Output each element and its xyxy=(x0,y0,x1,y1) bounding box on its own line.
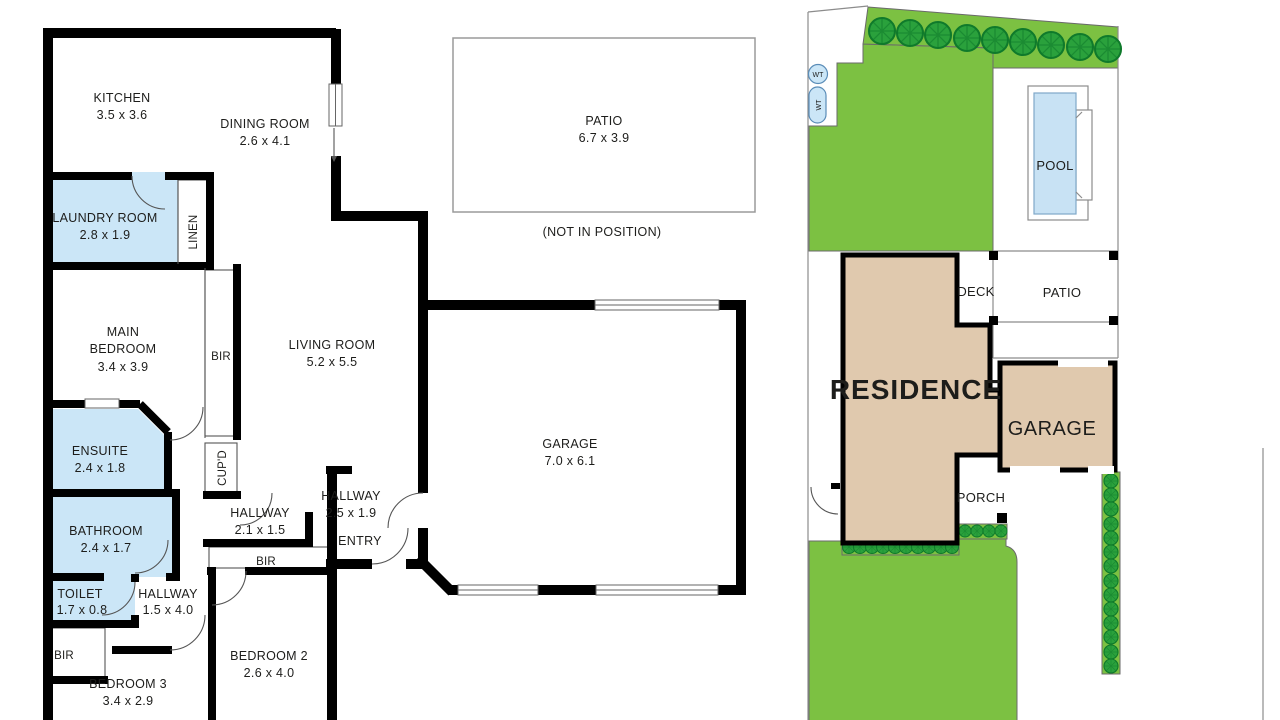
label-bathroom-dims: 2.4 x 1.7 xyxy=(81,541,132,555)
label-patio-dims: 6.7 x 3.9 xyxy=(579,131,630,145)
label-toilet-dims: 1.7 x 0.8 xyxy=(57,603,108,617)
garage-footprint xyxy=(1000,363,1115,470)
label-kitchen-dims: 3.5 x 3.6 xyxy=(97,108,148,122)
ensuite-window xyxy=(85,399,119,408)
label-living-dims: 5.2 x 5.5 xyxy=(307,355,358,369)
label-bir-bed3: BIR xyxy=(54,650,74,662)
label-cupd: CUP'D xyxy=(217,450,229,486)
pool xyxy=(1028,86,1092,220)
lower-lawn xyxy=(809,538,1017,720)
label-ensuite-dims: 2.4 x 1.8 xyxy=(75,461,126,475)
label-residence: RESIDENCE xyxy=(830,374,1002,405)
floorplan-svg: KITCHEN 3.5 x 3.6 DINING ROOM 2.6 x 4.1 … xyxy=(0,0,1280,720)
label-wt-2: WT xyxy=(816,99,823,111)
label-main-bedroom-1: MAIN xyxy=(107,325,139,339)
label-dining: DINING ROOM xyxy=(220,117,309,131)
label-laundry-dims: 2.8 x 1.9 xyxy=(80,228,131,242)
label-hallway-b: HALLWAY xyxy=(321,489,381,503)
label-main-bedroom-2: BEDROOM xyxy=(90,342,157,356)
pool-water xyxy=(1034,93,1076,214)
label-linen: LINEN xyxy=(188,215,200,250)
label-site-garage: GARAGE xyxy=(1008,418,1097,440)
upper-lawn xyxy=(809,44,993,251)
label-dining-dims: 2.6 x 4.1 xyxy=(240,134,291,148)
label-laundry: LAUNDRY ROOM xyxy=(52,211,157,225)
label-porch: PORCH xyxy=(957,490,1005,505)
floor-plan: KITCHEN 3.5 x 3.6 DINING ROOM 2.6 x 4.1 … xyxy=(43,28,755,720)
label-ensuite: ENSUITE xyxy=(72,444,128,458)
label-bedroom2: BEDROOM 2 xyxy=(230,649,308,663)
label-hallway-a: HALLWAY xyxy=(230,506,290,520)
label-entry: ENTRY xyxy=(338,534,382,548)
label-living: LIVING ROOM xyxy=(289,338,376,352)
label-bedroom3: BEDROOM 3 xyxy=(89,677,167,691)
floorplan-image: KITCHEN 3.5 x 3.6 DINING ROOM 2.6 x 4.1 … xyxy=(0,0,1280,720)
label-site-patio: PATIO xyxy=(1043,285,1082,300)
label-hallway-a-dims: 2.1 x 1.5 xyxy=(235,523,286,537)
label-patio-note: (NOT IN POSITION) xyxy=(543,225,662,239)
side-gate xyxy=(811,483,840,514)
label-hallway-b-dims: 2.5 x 1.9 xyxy=(326,506,377,520)
label-toilet: TOILET xyxy=(57,587,102,601)
label-bedroom3-dims: 3.4 x 2.9 xyxy=(103,694,154,708)
label-garage-dims: 7.0 x 6.1 xyxy=(545,454,596,468)
label-deck: DECK xyxy=(957,284,994,299)
label-bir-main: BIR xyxy=(211,351,231,363)
label-main-bedroom-dims: 3.4 x 3.9 xyxy=(98,360,149,374)
label-patio: PATIO xyxy=(585,114,622,128)
label-hallway-c: HALLWAY xyxy=(138,587,198,601)
label-hallway-c-dims: 1.5 x 4.0 xyxy=(143,603,194,617)
pool-bump xyxy=(1076,110,1092,200)
label-kitchen: KITCHEN xyxy=(94,91,151,105)
water-tanks: WT WT xyxy=(809,65,828,124)
label-bathroom: BATHROOM xyxy=(69,524,143,538)
label-bedroom2-dims: 2.6 x 4.0 xyxy=(244,666,295,680)
label-pool: POOL xyxy=(1036,158,1073,173)
label-bir-bed2: BIR xyxy=(256,556,276,568)
site-plan: WT WT RESIDENCE GARAGE DECK PATIO PORCH … xyxy=(808,6,1263,720)
porch-post xyxy=(997,513,1007,523)
label-wt-1: WT xyxy=(813,72,825,79)
label-garage: GARAGE xyxy=(542,437,597,451)
